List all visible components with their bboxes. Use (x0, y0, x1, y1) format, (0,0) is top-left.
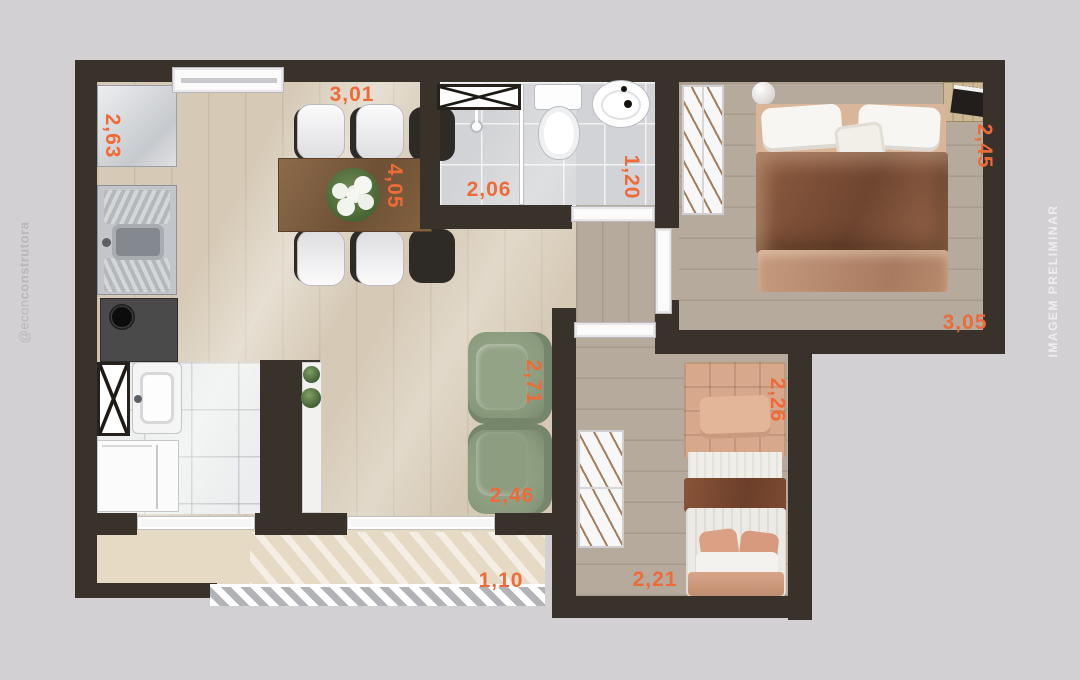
wall-bedroom1-left (655, 82, 679, 228)
bedroom1-wardrobe (682, 85, 724, 215)
floor-plan-canvas: 2,63 3,01 4,05 2,06 1,20 2,45 3,05 2,71 … (0, 0, 1080, 680)
bathroom-window (437, 84, 521, 110)
wall-left (75, 60, 97, 598)
flower-centerpiece (326, 168, 380, 222)
bedroom2-wardrobe (578, 430, 624, 548)
bedroom1-door (655, 228, 672, 314)
dimension-dining-width: 3,01 (315, 81, 389, 109)
plant (301, 388, 321, 408)
kitchen-sink-counter (97, 185, 177, 295)
sink-faucet-dot (621, 86, 627, 92)
dining-chair (356, 230, 404, 286)
watermark-handle-prefix: @econ (17, 299, 32, 343)
bed1-headboard (752, 82, 950, 106)
washing-machine (97, 440, 179, 512)
dimension-dining-length: 4,05 (380, 149, 408, 223)
laundry-tank (132, 362, 182, 434)
balcony-sliding-door (137, 516, 255, 530)
faucet (102, 238, 111, 247)
stove (100, 298, 178, 362)
dining-chair (297, 230, 345, 286)
wall-bedroom2-bottom (552, 596, 812, 618)
entry-door (172, 67, 284, 93)
dimension-living-depth: 2,71 (519, 345, 547, 419)
tank-faucet (134, 395, 142, 403)
dimension-kitchen-depth: 2,63 (98, 99, 126, 173)
dimension-bedroom1-width: 3,05 (928, 309, 1002, 337)
bedroom2-door (574, 322, 656, 338)
sink-basin (112, 224, 164, 260)
wall-balcony-a (95, 513, 137, 535)
dimension-bathroom-depth: 1,20 (617, 140, 645, 214)
bed1-duvet (756, 152, 948, 254)
wall-balcony-c (495, 513, 553, 535)
dimension-bathroom-width: 2,06 (452, 176, 526, 204)
sink-drain-dot (624, 100, 632, 108)
balcony-sliding-door (347, 516, 495, 530)
counter-strip (302, 362, 322, 513)
bed2-headboard-pillow (699, 395, 770, 439)
watermark-preliminary: IMAGEM PRELIMINAR (1046, 201, 1060, 361)
bed1-pillow (761, 103, 844, 152)
service-window (97, 362, 130, 436)
bed1-throw (758, 250, 948, 292)
dimension-bedroom1-depth: 2,45 (970, 109, 998, 183)
dimension-bedroom2-depth: 2,26 (763, 363, 791, 437)
wall-mid-vertical (552, 308, 576, 600)
dining-chair (297, 104, 345, 160)
wall-bedroom2-right (788, 354, 812, 620)
burner (109, 304, 135, 330)
bed2-foot-blanket (688, 572, 784, 596)
bathroom-sink (592, 80, 650, 128)
plant (303, 366, 320, 383)
watermark-handle-bold: construtora (17, 222, 32, 300)
dimension-balcony-depth: 1,10 (464, 567, 538, 595)
dimension-bedroom2-width: 2,21 (618, 566, 692, 594)
toilet-bowl (538, 106, 580, 160)
bed2-brown-runner (684, 478, 786, 512)
watermark-handle: @econconstrutora (17, 203, 32, 363)
dimension-living-width: 2,46 (475, 482, 549, 510)
wall-bottom-left (75, 583, 217, 598)
wall-balcony-b (255, 513, 347, 535)
wall-bathroom-bottom (420, 205, 572, 229)
